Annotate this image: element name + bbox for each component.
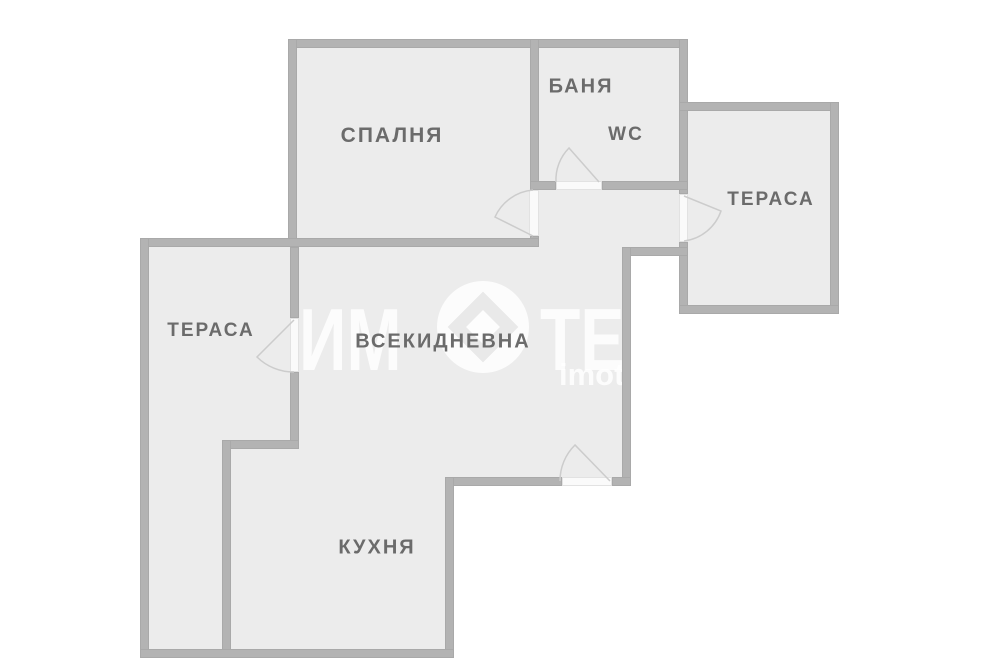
- door-leaf-bathroom: [556, 181, 602, 190]
- room-label-terrace-left: ТЕРАСА: [167, 320, 255, 342]
- watermark-site-text: imoteka: [559, 359, 676, 390]
- room-label-terrace-right: ТЕРАСА: [727, 189, 815, 211]
- room-label-bedroom: СПАЛНЯ: [341, 124, 444, 148]
- wall-nook-bottom: [622, 247, 688, 256]
- floor-bathroom: [539, 48, 679, 182]
- door-leaf-terrace-left: [290, 318, 299, 372]
- wall-kitchen-left: [222, 440, 231, 658]
- wall-bedroom-left: [288, 39, 297, 247]
- wall-kitchen-right: [445, 477, 454, 658]
- room-label-kitchen: КУХНЯ: [338, 537, 415, 560]
- wall-outer-left: [140, 238, 149, 658]
- wall-terrace-right-bottom: [679, 305, 839, 314]
- room-label-living-room: ВСЕКИДНЕВНА: [355, 331, 530, 354]
- floor-hall-nook: [539, 190, 679, 247]
- room-label-bathroom: БАНЯ: [549, 76, 614, 99]
- wall-terrace-left-right-lower: [290, 372, 299, 449]
- wall-outer-bottom: [140, 649, 454, 658]
- wall-living-right: [622, 247, 631, 486]
- door-leaf-bedroom: [529, 190, 539, 236]
- wall-living-bottom-right: [612, 477, 631, 486]
- wall-living-bottom-left: [445, 477, 562, 486]
- wall-bedroom-bath-divider: [530, 39, 539, 190]
- floorplan-canvas: ИМ ТЕКА imoteka СПАЛНЯ БАНЯ WC ТЕРАСА Т: [0, 0, 1000, 666]
- door-leaf-terrace-right: [679, 194, 688, 242]
- wall-terrace-left-right-upper: [290, 247, 299, 318]
- door-leaf-entrance: [562, 477, 612, 486]
- wall-kitchen-jog: [222, 440, 299, 449]
- wall-bath-right-upper: [679, 39, 688, 194]
- watermark-logo-circle: [437, 281, 529, 373]
- wall-bath-bottom-right: [602, 181, 688, 190]
- wall-outer-top: [288, 39, 688, 48]
- wall-terrace-right-top: [679, 102, 839, 111]
- wall-terrace-right-right: [830, 102, 839, 314]
- wall-mid-band: [140, 238, 539, 247]
- floor-terrace-left: [149, 247, 290, 449]
- floor-terrace-left-strip: [149, 449, 222, 649]
- wall-bath-bottom-left: [530, 181, 556, 190]
- room-label-wc: WC: [608, 124, 644, 146]
